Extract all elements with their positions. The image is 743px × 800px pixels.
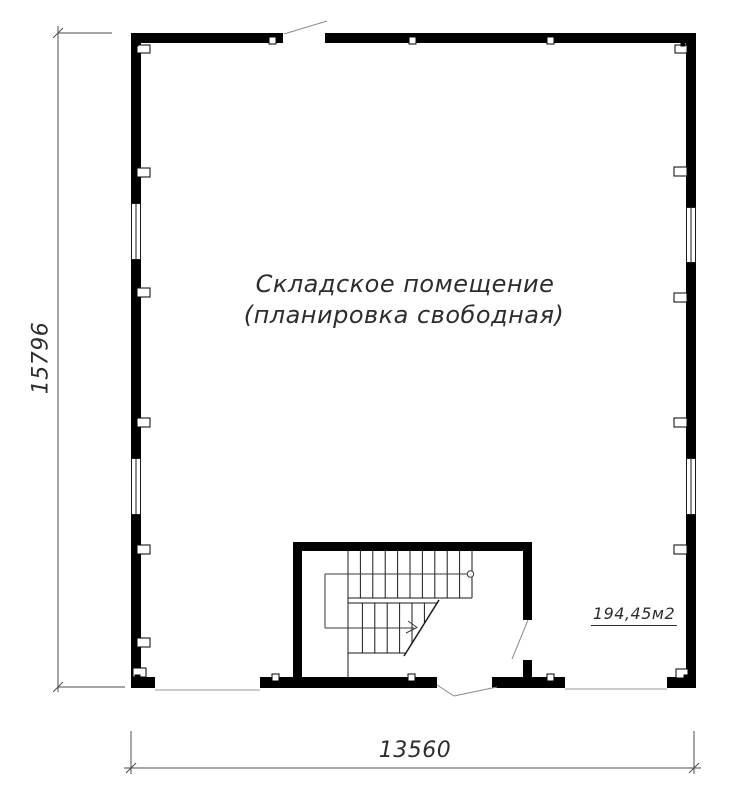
column-marker-icon (674, 545, 687, 554)
room-note-label: (планировка свободная) (244, 301, 565, 329)
bottom-door-leaves (437, 685, 497, 696)
column-marker-icon (137, 545, 150, 554)
corner-anchor-icon (135, 675, 140, 678)
area-label: 194,45м2 (591, 604, 677, 626)
window-icon (687, 459, 696, 515)
top-door-leaf (284, 21, 327, 34)
wall-top-right-segment (325, 33, 696, 43)
stair-wall-right (523, 542, 532, 620)
window-icon (132, 204, 141, 260)
stair-wall-top (293, 542, 532, 551)
wall-bottom-corner-left (131, 677, 155, 688)
stair-wall-stub (523, 660, 532, 677)
column-marker-icon (547, 37, 554, 44)
floor-plan-drawing (0, 0, 743, 800)
wall-right-upper (686, 33, 696, 207)
window-icon (687, 208, 696, 263)
column-marker-icon (272, 674, 279, 681)
window-icon (132, 459, 141, 515)
horizontal-dimension-label: 13560 (379, 738, 452, 763)
windows (132, 204, 696, 515)
column-marker-icon (269, 37, 276, 44)
corner-anchor-icon (681, 43, 685, 46)
column-marker-icon (408, 674, 415, 681)
corner-anchor-icon (684, 675, 688, 678)
column-marker-icon (674, 418, 687, 427)
column-marker-icon (674, 293, 687, 302)
column-marker-icon (137, 418, 150, 427)
wall-top-left-segment (131, 33, 283, 43)
wall-right-middle (686, 263, 696, 458)
stair-door-leaf (512, 620, 528, 659)
vertical-dimension (53, 26, 125, 692)
stair-direction-start-icon (467, 571, 473, 577)
exterior-walls (131, 33, 696, 688)
room-name-label: Складское помещение (256, 270, 555, 298)
corner-anchor-icon (133, 43, 138, 46)
column-marker-icon (137, 288, 150, 297)
wall-bottom-corner-right (667, 677, 696, 688)
column-marker-icon (137, 168, 150, 177)
vertical-dimension-label: 15796 (29, 322, 54, 395)
column-marker-icon (409, 37, 416, 44)
doors (155, 21, 667, 696)
stair-wall-left (293, 542, 302, 677)
wall-right-lower (686, 515, 696, 688)
staircase (325, 551, 474, 677)
floor-plan-canvas: Складское помещение (планировка свободна… (0, 0, 743, 800)
dimensions (53, 26, 701, 774)
column-marker-icon (137, 45, 150, 53)
column-marker-icon (547, 674, 554, 681)
wall-left-lower (131, 515, 141, 688)
column-marker-icon (674, 167, 687, 176)
column-marker-icon (137, 638, 150, 647)
